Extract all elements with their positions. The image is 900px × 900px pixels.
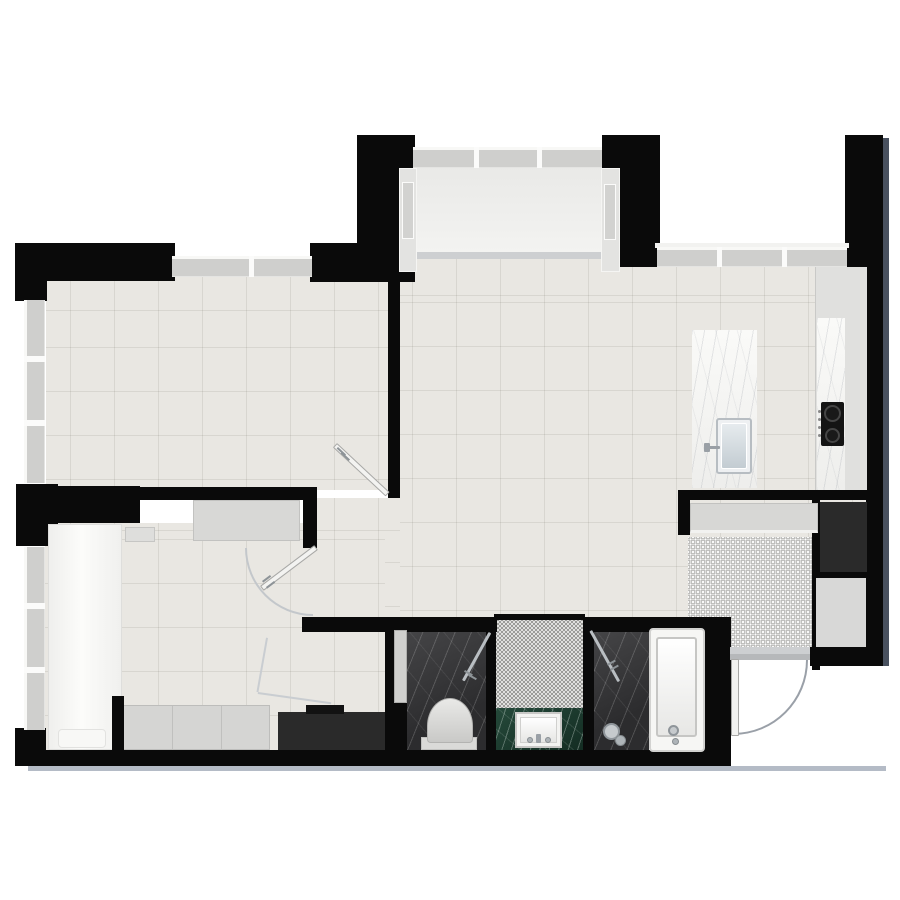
nightstand [125,527,155,542]
bedroom-dark-cabinet-top [306,705,344,714]
bath-left-lower-wall [394,703,407,753]
entry-door-leaf [731,659,739,736]
bath-divider-wall-a [486,630,496,751]
left-window-lower-mullion-1 [24,603,45,609]
bedroom-wall-stub [112,696,124,752]
top-left-exterior-wall-v [15,243,47,301]
entry-top-wall [678,490,883,500]
entry-door-swing-arc [733,660,808,735]
bay-threshold [413,252,602,259]
left-window-lower-mullion-2 [24,667,45,673]
vanity-faucet-handle-left [527,737,533,743]
cooktop-burner-large [824,405,841,422]
bottom-exterior-shadow [28,766,886,771]
bed-head-wall [40,486,140,523]
island-faucet-spout [708,446,720,449]
dresser [193,500,300,541]
cooktop-knob-3 [818,426,821,429]
entry-closet [690,503,818,533]
bathtub-faucet-knob [672,738,679,745]
bed [48,524,122,750]
right-exterior-shadow [883,138,889,666]
wardrobe [123,705,270,750]
bay-top-window-mullion-1 [474,147,479,168]
cooktop-burner-small [825,428,840,443]
left-window-lower [24,547,45,730]
bedroom-dark-cabinet [278,712,385,750]
top-wall-segment [310,243,360,282]
bay-side-pane-right [604,184,616,240]
entry-stub-wall [678,490,690,535]
top-left-room-floor [46,277,388,490]
top-window-mullion [249,256,254,277]
vanity-faucet-spout [536,734,541,743]
island-sink-basin [721,423,747,469]
floor-plan [0,0,900,900]
bed-pillow [58,729,106,748]
room-divider-wall [388,282,400,498]
bedroom-top-wall [140,487,317,500]
right-exterior-wall [866,267,883,666]
entry-left-jamb-wall [703,617,731,766]
bathtub-faucet [668,725,679,736]
bay-window-floor [415,166,602,252]
bottom-exterior-wall [15,750,731,766]
cooktop-knob-4 [818,434,821,437]
entry-tall-cabinet [820,502,867,572]
top-window [172,256,312,277]
hand-shower-knob [615,735,626,746]
left-window-upper [24,300,45,483]
bedroom-door-stub-wall [303,488,317,548]
bay-side-pane-left [402,182,414,239]
left-window-upper-mullion-1 [24,356,45,362]
kitchen-top-window [657,247,847,267]
bathtub-basin [656,637,697,737]
kitchen-window-mullion-1 [717,247,722,267]
bath-divider-wall-b [583,620,594,751]
top-right-corner-wall [845,135,883,267]
bay-top-window [413,147,602,168]
cooktop-knob-2 [818,418,821,421]
cooktop-knob-1 [818,410,821,413]
vanity-top-wall-line [494,614,585,620]
bath-left-wall [385,617,394,753]
kitchen-window-mullion-2 [782,247,787,267]
left-window-upper-mullion-2 [24,420,45,426]
wc-pocket-door [394,630,407,703]
entry-bottom-wall-block [810,647,883,666]
bay-top-window-mullion-2 [537,147,542,168]
foyer-niche-floor [816,578,866,647]
entry-threshold-outer [730,647,810,654]
vanity-faucet-handle-right [545,737,551,743]
vanity-mosaic-floor [496,620,583,708]
